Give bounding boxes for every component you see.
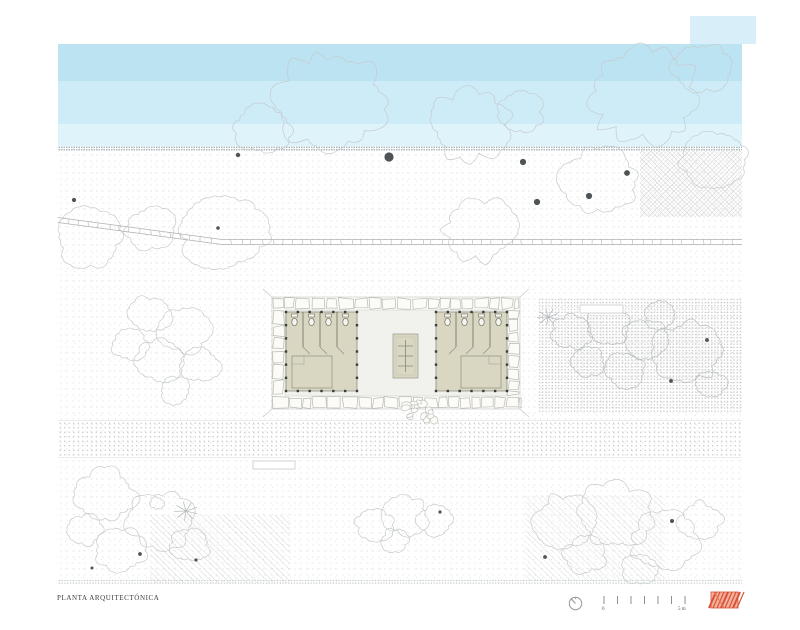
footer-symbols	[569, 592, 744, 610]
north-arrow-icon	[569, 597, 581, 609]
drawing-title: PLANTA ARQUITECTÓNICA	[57, 594, 159, 602]
red-hatched-logo-stamp	[709, 592, 744, 608]
plan-linework	[0, 0, 800, 630]
scale-bar	[604, 596, 685, 604]
scale-zero-label: 0	[602, 607, 605, 612]
stone-wall-path	[58, 218, 742, 245]
plan-sheet: PLANTA ARQUITECTÓNICA 0 5 m	[0, 0, 800, 630]
scale-end-label: 5 m	[678, 607, 686, 612]
restroom-building-plan	[263, 289, 529, 425]
